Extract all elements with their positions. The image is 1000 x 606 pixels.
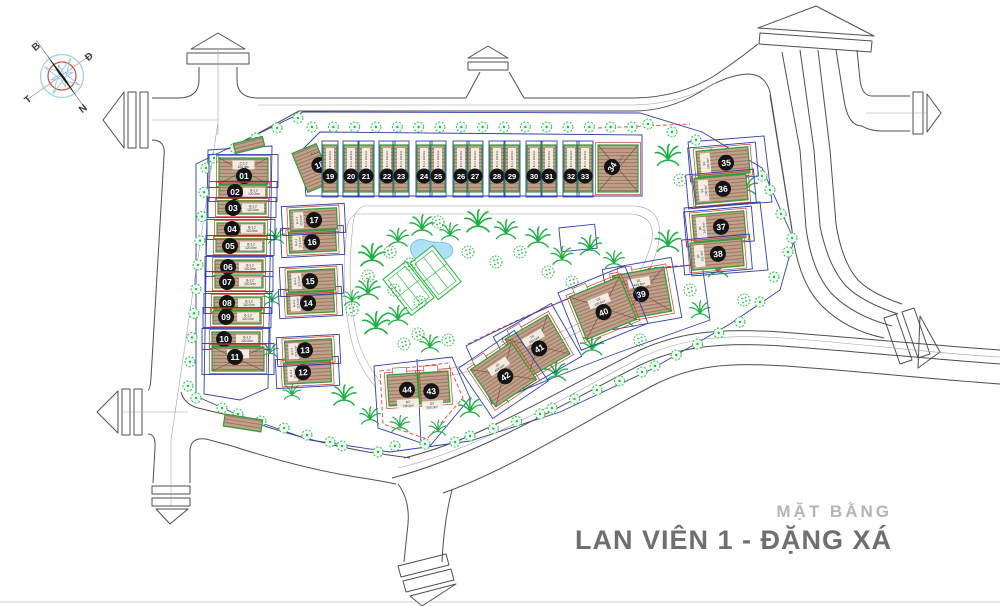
bush-icon [432, 216, 444, 228]
plot-44[interactable]: D2736.0m²44 [384, 366, 422, 409]
tree-icon [328, 122, 338, 132]
tree-icon [714, 328, 724, 338]
svg-text:B-1.1 132.5m²: B-1.1 132.5m² [436, 151, 440, 168]
outbuilding [223, 414, 262, 432]
plot-number: 28 [493, 172, 501, 181]
compass-south-label: N [77, 103, 90, 116]
tree-icon [456, 122, 466, 132]
compass-rose: B Đ T N [23, 40, 96, 116]
tree-icon [787, 233, 797, 243]
tree-icon [488, 424, 498, 434]
tree-icon [272, 123, 282, 133]
plot-number: 11 [231, 352, 240, 362]
road-arrow-west-icon [103, 92, 124, 148]
compass-north-label: B [30, 41, 43, 54]
tree-icon [535, 409, 545, 419]
palm-tree-icon [495, 220, 518, 239]
tree-icon [420, 439, 430, 449]
outbuilding [233, 137, 265, 154]
svg-text:736.0m²: 736.0m² [402, 403, 414, 408]
svg-text:120.0m²: 120.0m² [243, 303, 255, 307]
plot-number: 19 [326, 172, 334, 181]
tree-icon [615, 376, 625, 386]
plot-number: 09 [221, 312, 231, 322]
svg-text:120.0m²: 120.0m² [244, 267, 256, 271]
plot-number: 30 [530, 172, 538, 181]
plot-25[interactable]: B-1.1 132.5m²25 [430, 141, 446, 197]
tree-icon [547, 403, 557, 413]
tree-icon [783, 247, 793, 257]
plot-number: 39 [636, 288, 647, 300]
tree-icon [293, 113, 303, 123]
tree-icon [520, 122, 530, 132]
plot-number: 10 [219, 334, 229, 344]
plot-number: 25 [434, 172, 442, 181]
plot-number: 02 [230, 187, 240, 197]
palm-tree-icon [387, 228, 409, 246]
plot-number: 20 [347, 172, 355, 181]
tree-icon [390, 441, 400, 451]
bush-icon [412, 328, 424, 340]
tree-icon [693, 339, 703, 349]
tree-icon [667, 127, 677, 137]
bush-icon [542, 266, 554, 278]
plot-number: 32 [567, 172, 575, 181]
tree-icon [450, 437, 460, 447]
svg-text:B-1.1 132.5m²: B-1.1 132.5m² [399, 151, 403, 168]
plot-10[interactable]: B-1.2120.0m²10 [202, 329, 270, 350]
plot-number: 44 [402, 384, 412, 395]
svg-text:215.0m²: 215.0m² [298, 237, 303, 248]
svg-text:B-1.1 132.5m²: B-1.1 132.5m² [349, 151, 353, 168]
plan-subtitle: MẶT BẰNG [575, 502, 892, 522]
svg-text:B-1.1 132.5m²: B-1.1 132.5m² [510, 151, 514, 168]
tree-icon [279, 423, 289, 433]
plot-number: 13 [300, 345, 310, 355]
bush-icon [738, 294, 750, 306]
plot-number: 14 [303, 298, 313, 308]
compass-needle-icon [47, 55, 77, 97]
tree-icon [570, 394, 580, 404]
svg-text:120.0m²: 120.0m² [244, 282, 256, 286]
plan-title: LAN VIÊN 1 - ĐẶNG XÁ [575, 525, 892, 556]
tree-icon [302, 430, 312, 440]
plot-20[interactable]: B-1.1 132.5m²20 [343, 141, 359, 197]
plot-28[interactable]: B-1.1 132.5m²28 [489, 141, 505, 197]
plot-09[interactable]: B-1.2120.0m²09 [203, 308, 271, 328]
plot-number: 05 [225, 241, 235, 251]
road-arrow-south2-icon [410, 584, 456, 606]
plot-number: 43 [426, 386, 436, 397]
svg-text:B-1.1 132.5m²: B-1.1 132.5m² [385, 151, 389, 168]
tree-icon [435, 122, 445, 132]
plot-34[interactable]: C-1.134 [596, 143, 641, 195]
tree-icon [542, 122, 552, 132]
tree-icon [637, 367, 647, 377]
svg-text:215.0m²: 215.0m² [296, 298, 301, 309]
road-arrow-southeast-icon [918, 316, 940, 368]
svg-text:120.0m²: 120.0m² [246, 229, 258, 233]
palm-tree-icon [332, 385, 356, 405]
tree-icon [776, 209, 786, 219]
road-arrow-north-icon [191, 33, 245, 49]
plot-number: 36 [718, 183, 729, 194]
tree-icon [643, 119, 653, 129]
tree-icon [183, 381, 193, 391]
palm-tree-icon [429, 420, 447, 435]
palm-tree-icon [526, 227, 550, 247]
tree-icon [563, 122, 573, 132]
palm-tree-icon [390, 416, 409, 432]
tree-icon [195, 236, 205, 246]
palm-tree-icon [604, 251, 624, 268]
palm-tree-icon [551, 246, 573, 264]
palm-tree-icon [465, 210, 491, 232]
tree-icon [478, 122, 488, 132]
tree-icon [584, 122, 594, 132]
plot-number: 15 [305, 276, 315, 286]
plot-number: 12 [298, 367, 308, 377]
svg-text:215.0m²: 215.0m² [297, 276, 302, 287]
tree-icon [217, 403, 227, 413]
plot-number: 07 [222, 277, 232, 287]
svg-text:B-1.1 132.5m²: B-1.1 132.5m² [547, 151, 551, 168]
svg-text:B-1.1 132.5m²: B-1.1 132.5m² [459, 151, 463, 168]
plot-number: 23 [397, 172, 405, 181]
palm-tree-icon [359, 244, 385, 266]
plot-number: 37 [716, 221, 727, 232]
road-arrow-west2-icon [97, 391, 118, 433]
plot-03[interactable]: B-1.2120.0m²03 [208, 198, 276, 218]
tree-icon [185, 357, 195, 367]
tree-icon [337, 441, 347, 451]
palm-tree-icon [690, 301, 710, 318]
tree-icon [373, 447, 383, 457]
tree-icon [592, 385, 602, 395]
tree-icon [191, 284, 201, 294]
plot-number: 16 [307, 237, 317, 247]
tree-icon [307, 122, 317, 132]
plot-33[interactable]: B-1.1 132.5m²33 [577, 141, 593, 197]
tree-icon [199, 187, 209, 197]
plot-number: 08 [222, 298, 232, 308]
bush-icon [684, 284, 696, 296]
svg-text:120.0m²: 120.0m² [248, 192, 260, 196]
plot-27[interactable]: B-1.1 132.5m²27 [467, 141, 483, 197]
plot-21[interactable]: B-1.1 132.5m²21 [358, 141, 374, 197]
plot-number: 27 [471, 172, 479, 181]
tree-icon [414, 122, 424, 132]
tree-icon [193, 260, 203, 270]
plot-number: 38 [713, 248, 724, 259]
title-block: MẶT BẰNG LAN VIÊN 1 - ĐẶNG XÁ [575, 502, 892, 556]
svg-text:B-1.1 132.5m²: B-1.1 132.5m² [473, 151, 477, 168]
plot-number: 31 [545, 172, 553, 181]
tree-icon [197, 211, 207, 221]
tree-icon [735, 317, 745, 327]
plot-number: 03 [228, 203, 238, 213]
plot-19[interactable]: B-1.1 132.5m²19 [322, 141, 338, 197]
road-arrow-up-icon [468, 46, 508, 58]
svg-text:B-1.1 132.5m²: B-1.1 132.5m² [583, 151, 587, 168]
plot-number: 06 [223, 262, 233, 272]
bush-icon [462, 246, 474, 258]
plot-05[interactable]: B-1.2120.0m²05 [206, 236, 274, 256]
plot-number: 29 [508, 172, 516, 181]
site-plan-canvas: C-1.2104.4m²01B-1.2120.0m²02B-1.2120.0m²… [0, 0, 1000, 606]
svg-text:500.0m²: 500.0m² [426, 405, 438, 410]
svg-text:B-1.1 132.5m²: B-1.1 132.5m² [364, 151, 368, 168]
plot-31[interactable]: B-1.1 132.5m²31 [541, 141, 557, 197]
svg-text:215.0m²: 215.0m² [299, 215, 304, 226]
road-arrow-south-icon [156, 509, 188, 524]
svg-text:B-1.1 132.5m²: B-1.1 132.5m² [328, 151, 332, 168]
plot-number: 01 [239, 171, 249, 181]
tree-icon [769, 272, 779, 282]
tree-icon [627, 122, 637, 132]
plot-number: 17 [309, 215, 319, 225]
tree-icon [465, 431, 475, 441]
bush-icon [514, 246, 526, 258]
tree-icon [189, 308, 199, 318]
svg-text:120.0m²: 120.0m² [242, 317, 254, 321]
tree-icon [392, 122, 402, 132]
svg-text:120.0m²: 120.0m² [245, 246, 257, 250]
svg-text:120.0m²: 120.0m² [247, 208, 259, 212]
plot-number: 35 [721, 157, 732, 168]
plot-number: 33 [581, 172, 589, 181]
palm-tree-icon [410, 215, 434, 235]
bush-icon [566, 276, 578, 288]
plot-number: 24 [420, 172, 429, 181]
plot-number: 22 [383, 172, 391, 181]
tree-icon [755, 297, 765, 307]
plot-29[interactable]: B-1.1 132.5m²29 [504, 141, 520, 197]
plot-11[interactable]: C-1.2110.0m²11 [202, 344, 274, 375]
road-arrow-big-north-icon [758, 6, 874, 36]
bush-icon [634, 334, 646, 346]
tree-icon [191, 393, 201, 403]
plot-06[interactable]: B-1.2120.0m²06 [205, 257, 273, 277]
bush-icon [490, 256, 502, 268]
compass-east-label: Đ [83, 51, 96, 64]
tree-icon [350, 122, 360, 132]
tree-icon [512, 416, 522, 426]
palm-tree-icon [655, 144, 680, 165]
tree-icon [606, 122, 616, 132]
tree-icon [201, 163, 211, 173]
svg-text:B-1.1 132.5m²: B-1.1 132.5m² [569, 151, 573, 168]
palm-tree-icon [579, 236, 602, 255]
plot-number: 26 [457, 172, 465, 181]
svg-text:B-1.1 132.5m²: B-1.1 132.5m² [532, 151, 536, 168]
tree-icon [650, 361, 660, 371]
tree-icon [325, 437, 335, 447]
bush-icon [398, 338, 410, 350]
palm-tree-icon [581, 336, 604, 355]
plot-number: 21 [362, 172, 370, 181]
tree-icon [691, 135, 701, 145]
bush-icon [442, 334, 454, 346]
road-arrow-east-icon [927, 94, 941, 132]
tree-icon [187, 333, 197, 343]
svg-text:B-1.1 132.5m²: B-1.1 132.5m² [495, 151, 499, 168]
plot-07[interactable]: B-1.2120.0m²07 [205, 272, 273, 292]
bush-icon [674, 174, 686, 186]
svg-text:120.0m²: 120.0m² [241, 339, 253, 343]
tree-icon [765, 185, 775, 195]
plot-30[interactable]: B-1.1 132.5m²30 [526, 141, 542, 197]
svg-text:B-1.1 132.5m²: B-1.1 132.5m² [422, 151, 426, 168]
plot-23[interactable]: B-1.1 132.5m²23 [393, 141, 409, 197]
plot-number: 04 [227, 224, 237, 234]
tree-icon [371, 122, 381, 132]
palm-tree-icon [363, 312, 389, 334]
tree-icon [499, 122, 509, 132]
tree-icon [671, 350, 681, 360]
